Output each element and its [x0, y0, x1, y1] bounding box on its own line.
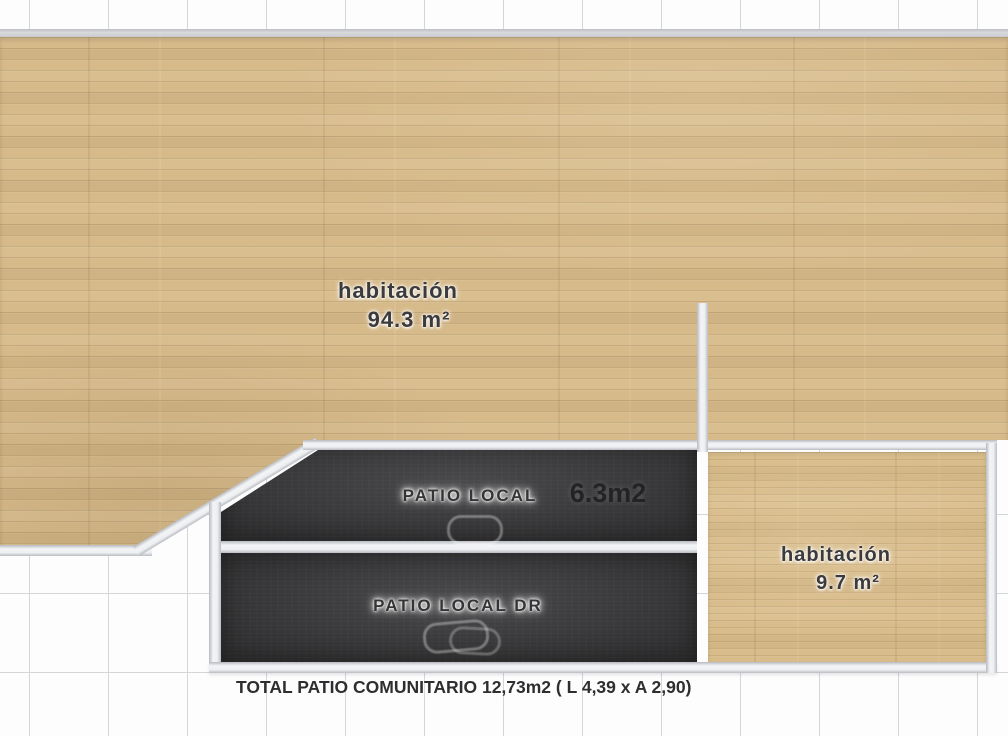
patio-local-label: PATIO LOCAL [370, 487, 570, 506]
main-room-label: habitación [298, 279, 498, 303]
bottom-wall [209, 662, 997, 673]
patio-local-area: 6.3m2 [558, 479, 658, 509]
right-wall [986, 443, 997, 673]
main-room-area: 94.3 m² [309, 308, 509, 332]
patio-left-wall [209, 502, 221, 673]
main-bottom-wall [303, 440, 997, 450]
patio-dr-label: PATIO LOCAL DR [358, 597, 558, 616]
small-room-area: 9.7 m² [748, 572, 948, 594]
total-patio-text: TOTAL PATIO COMUNITARIO 12,73m2 ( L 4,39… [236, 677, 691, 698]
stub-wall [697, 303, 708, 452]
floor-plan: habitación 94.3 m² PATIO LOCAL 6.3m2 PAT… [0, 0, 1008, 736]
patio-local-fixture-outline [447, 515, 503, 545]
bottom-left-wall [0, 545, 152, 556]
small-room-label: habitación [736, 544, 936, 566]
patio-dr-fixture-outline-right [448, 626, 501, 657]
top-wall [0, 29, 1008, 37]
